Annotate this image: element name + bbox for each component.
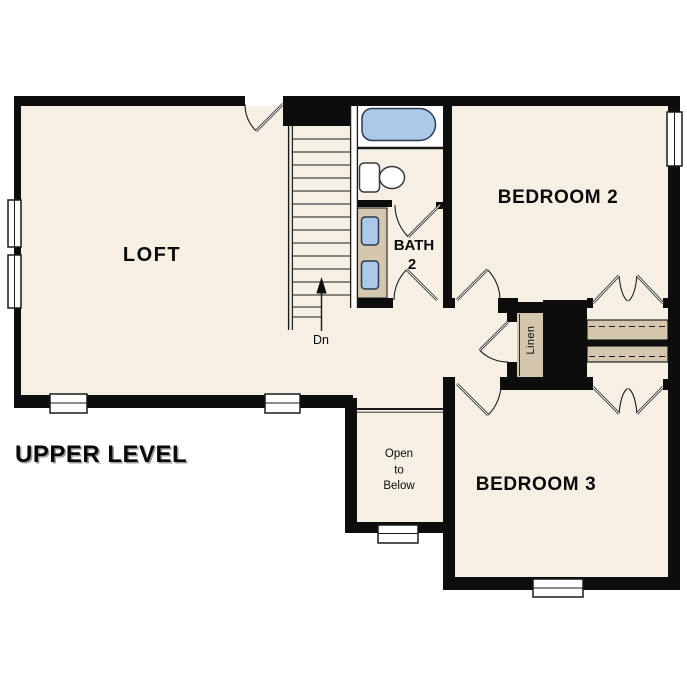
window-loft-left-2 — [8, 255, 21, 308]
room-label-linen: Linen — [525, 326, 537, 355]
room-label-bedroom3: BEDROOM 3 — [476, 474, 596, 495]
stair-direction-label: Dn — [313, 333, 329, 347]
open-to-below-line2: to — [394, 465, 404, 477]
room-label-loft: LOFT — [123, 244, 181, 266]
open-to-below-line3: Below — [383, 480, 415, 492]
sink-icon — [362, 261, 379, 289]
window-loft-left-1 — [8, 200, 21, 247]
shelf-bedroom3-closet — [587, 346, 668, 362]
vanity-icon — [357, 208, 387, 298]
window-loft-bottom-1 — [50, 394, 87, 413]
window-bedroom2 — [667, 112, 682, 166]
sink-icon — [362, 217, 379, 245]
floor-plan-page: Dn — [0, 0, 687, 687]
shelf-bedroom2-closet — [587, 320, 668, 340]
room-label-bath-number: 2 — [408, 256, 416, 273]
window-loft-bottom-2 — [265, 394, 300, 413]
window-open-to-below — [378, 525, 418, 543]
plan-title: UPPER LEVEL — [15, 441, 187, 468]
room-label-bath: BATH — [394, 237, 435, 254]
floor-plan: Dn — [0, 0, 687, 687]
room-label-bedroom2: BEDROOM 2 — [498, 187, 618, 208]
partition-stair-bath — [350, 106, 358, 308]
window-bedroom3 — [533, 579, 583, 597]
open-to-below-line1: Open — [385, 448, 413, 460]
bathtub-icon — [362, 108, 436, 140]
